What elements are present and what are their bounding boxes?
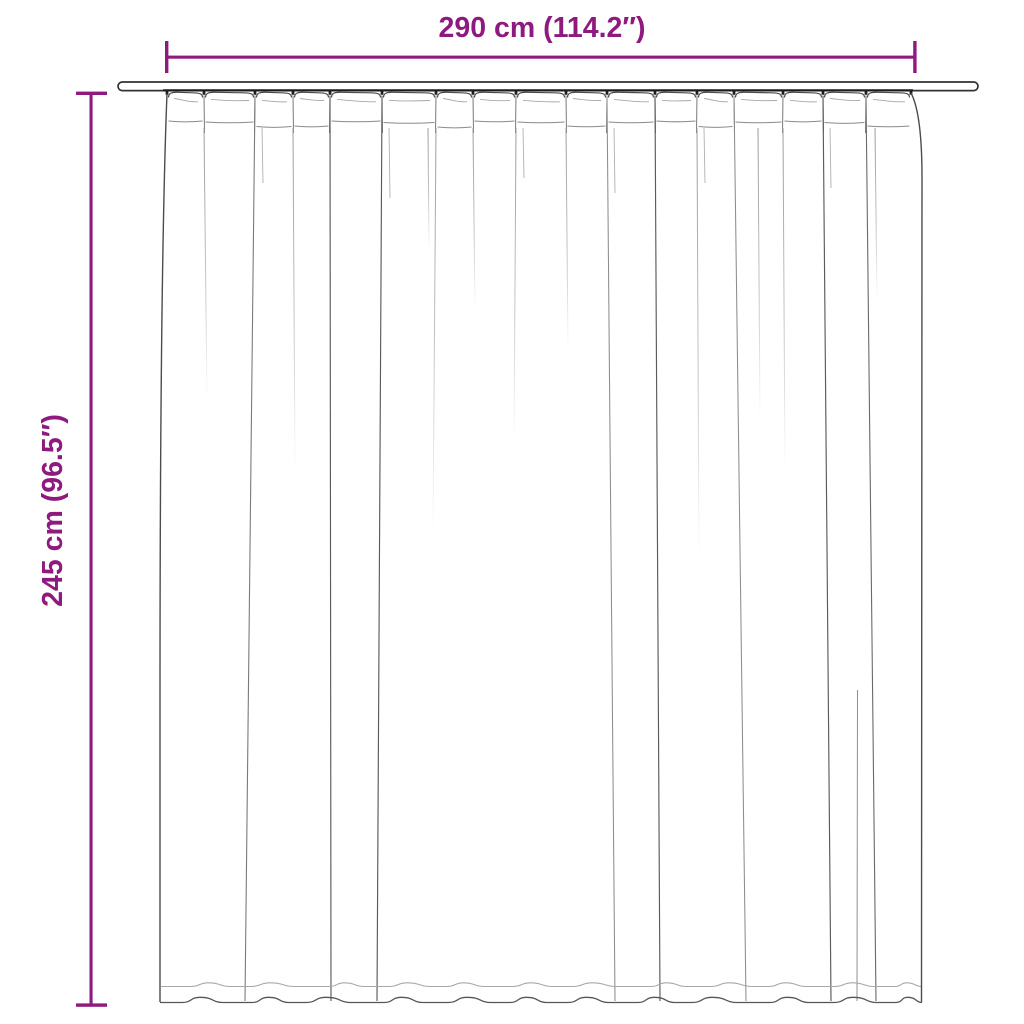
svg-text:245 cm (96.5″): 245 cm (96.5″) [37,414,69,607]
svg-text:290 cm (114.2″): 290 cm (114.2″) [439,12,646,44]
